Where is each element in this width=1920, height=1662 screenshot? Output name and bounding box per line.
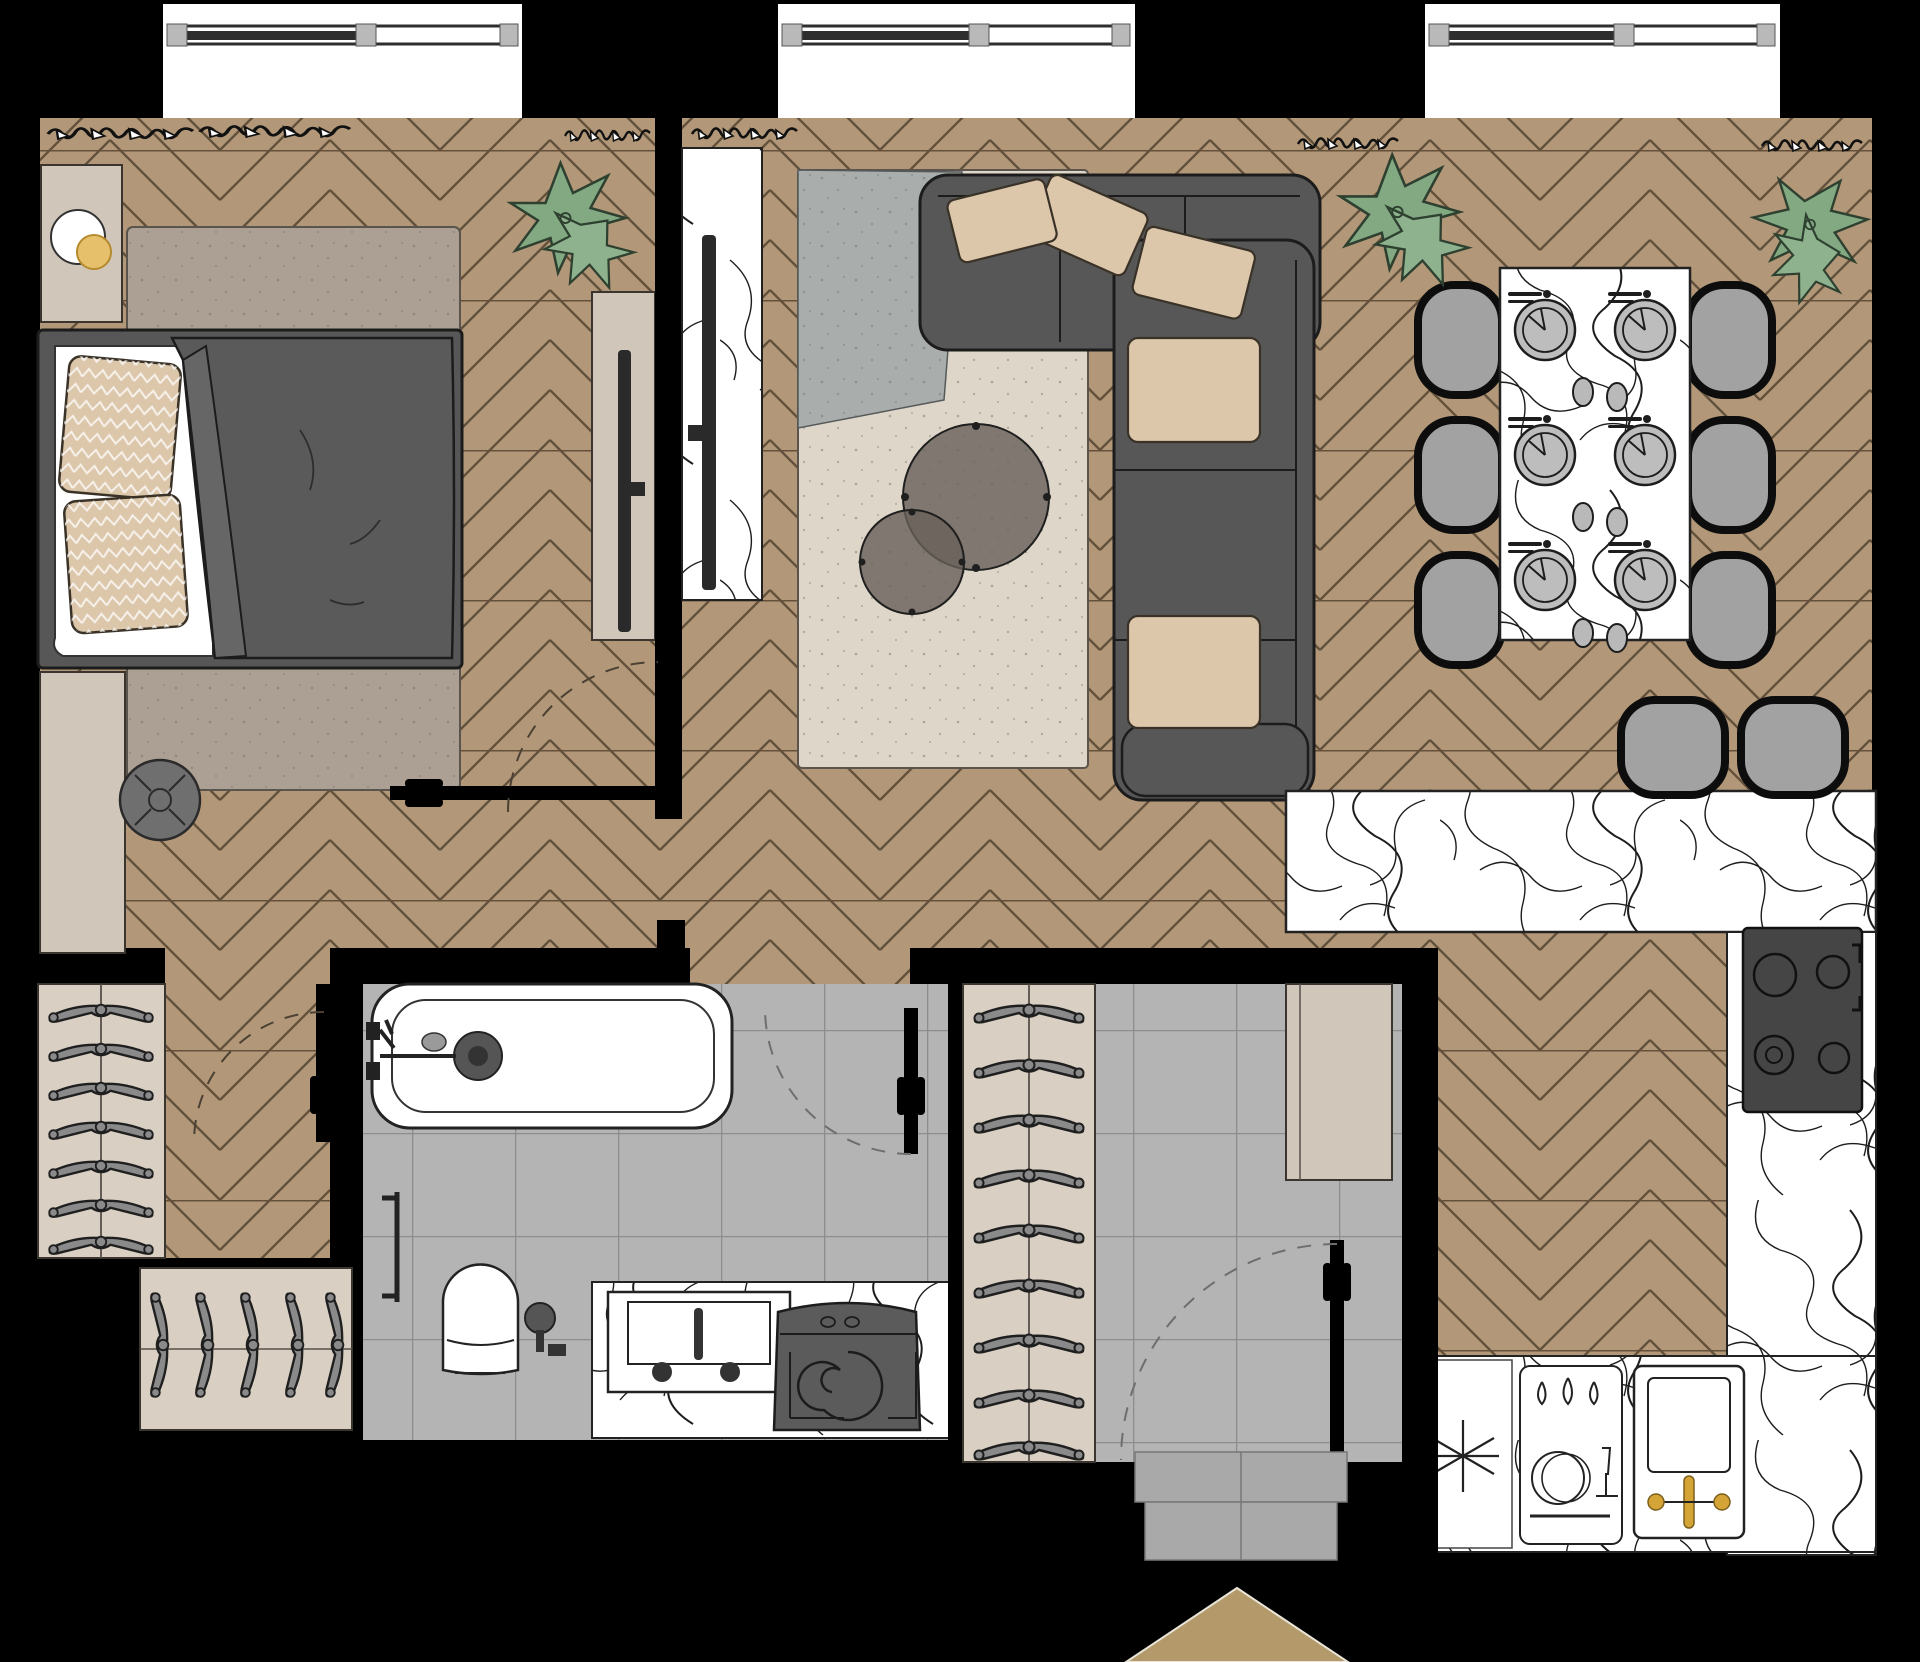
bathroom-door-opening — [690, 948, 910, 984]
window-bay-2 — [778, 4, 1135, 118]
bedroom-tv-icon — [618, 350, 631, 632]
frame-joint — [500, 24, 518, 46]
dining-chair — [1688, 555, 1772, 665]
dining-chair — [1418, 555, 1502, 665]
dishwasher-symbol-icon — [1520, 1366, 1622, 1544]
interior-wall — [655, 118, 682, 819]
island-counter — [1286, 791, 1876, 932]
bathtub — [366, 984, 732, 1128]
tv-mount — [631, 482, 645, 496]
living-tv-icon — [702, 235, 716, 590]
faucet-icon — [694, 1308, 703, 1360]
dining-chair — [1688, 420, 1772, 530]
frame-joint — [356, 24, 376, 46]
entry-threshold — [1135, 1452, 1347, 1560]
pouf — [120, 760, 200, 840]
bar-stool — [1741, 700, 1845, 795]
tv-mount — [688, 425, 702, 441]
hall-cabinet — [1286, 984, 1392, 1180]
entry-door-leaf — [1330, 1240, 1344, 1462]
floor-plan-canvas — [0, 0, 1920, 1662]
dining-chair — [1418, 285, 1502, 395]
low-dresser — [40, 672, 125, 953]
cooktop — [1743, 928, 1862, 1112]
kitchen-sink — [1634, 1366, 1744, 1538]
dining-chair — [1418, 420, 1502, 530]
bed-pillow-1 — [58, 355, 181, 500]
table-lamp-shade-icon — [77, 235, 111, 269]
window-opening — [163, 4, 522, 118]
coffee-table-small — [860, 510, 964, 614]
bathroom-door-leaf — [904, 1008, 918, 1154]
frame-joint — [167, 24, 187, 46]
parquet-floor-corridor — [40, 790, 1438, 948]
washing-machine — [774, 1303, 920, 1430]
window-sash — [176, 31, 366, 40]
marble-tv-panel — [682, 148, 762, 600]
bed-pillow-2 — [63, 494, 188, 634]
pocket-door-leaf — [316, 984, 332, 1142]
window-bay-1 — [163, 4, 522, 118]
window-bay-3 — [1425, 4, 1780, 118]
dining-chair — [1688, 285, 1772, 395]
floor-plan-drawing — [0, 0, 1920, 1662]
bar-stool — [1621, 700, 1725, 795]
entry-hall — [948, 948, 1438, 1662]
parquet-floor-closet-corridor — [165, 948, 330, 1258]
sofa-arm — [1122, 724, 1308, 796]
double-bed — [38, 330, 462, 668]
vanity-sink — [608, 1292, 790, 1392]
toilet — [443, 1265, 518, 1375]
